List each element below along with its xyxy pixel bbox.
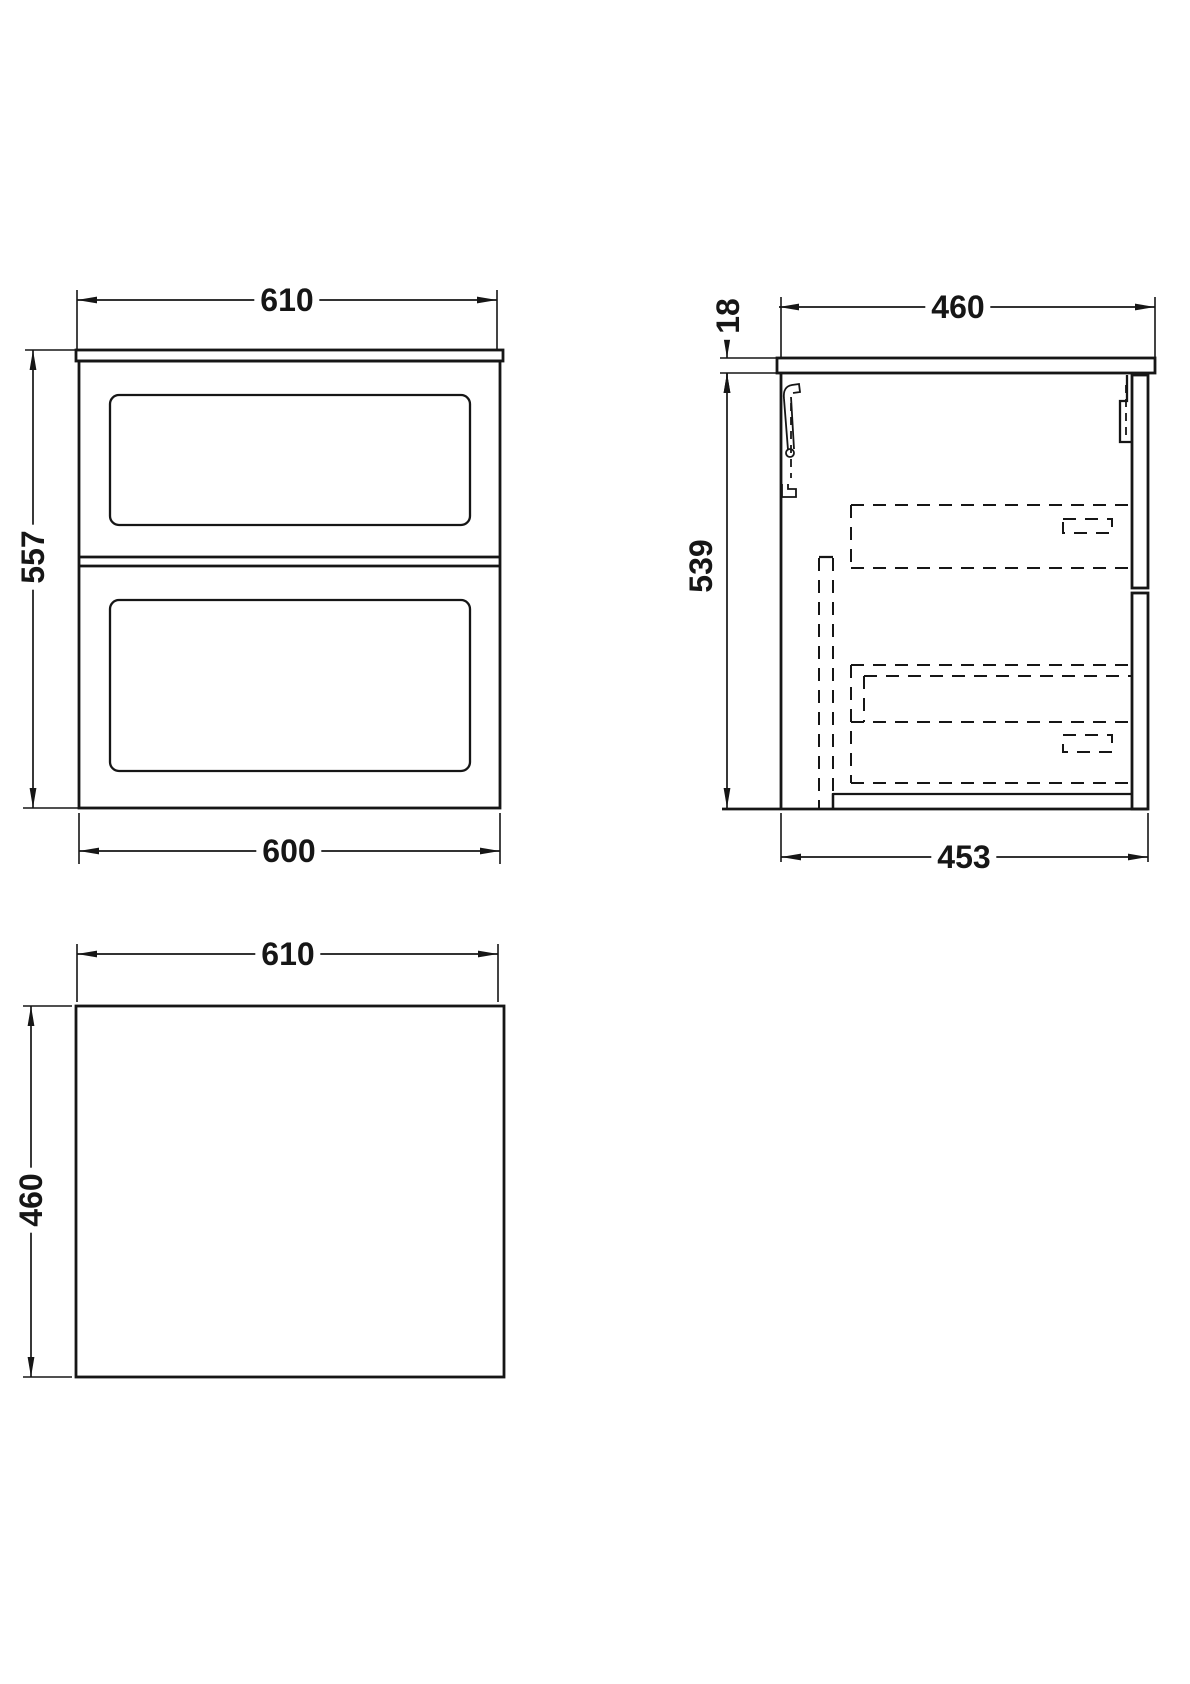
side-height-label: 539 [685,533,717,598]
plan-extension-lines [23,944,498,1377]
plan-worktop-outline [76,1006,504,1377]
side-lower-drawer-front [1132,593,1148,809]
side-bottom-panel [833,794,1132,809]
front-top-width-label: 610 [254,284,319,316]
wall-bracket [782,384,800,497]
front-bottom-width-label: 600 [256,835,321,867]
front-worktop [76,350,503,361]
side-back-strip-solid [819,557,833,809]
front-drawer-divider [79,557,500,566]
side-lower-drawer-runner [1063,735,1112,752]
plan-view [23,944,504,1377]
side-bottom-depth-label: 453 [931,841,996,873]
side-worktop [777,358,1155,373]
front-view [23,290,503,864]
side-upper-drawer-box [851,505,1132,568]
front-extension-lines [23,290,500,864]
side-upper-drawer-runner [1063,519,1112,533]
front-cabinet-body [79,361,500,808]
front-upper-drawer-panel [110,395,470,525]
side-lower-drawer-box [851,665,1132,783]
side-view [720,297,1155,862]
side-back-strip-hidden [819,558,833,809]
plan-width-label: 610 [255,938,320,970]
drawing-linework [0,0,1190,1684]
side-worktop-thickness-label: 18 [712,292,744,340]
side-upper-drawer-front [1132,375,1148,588]
side-top-depth-label: 460 [925,291,990,323]
plan-depth-label: 460 [15,1167,47,1232]
side-extension-lines [720,297,1155,862]
front-height-label: 557 [17,524,49,589]
front-lower-drawer-panel [110,600,470,771]
vanity-technical-drawing: 610 557 600 460 18 539 453 610 460 [0,0,1190,1684]
